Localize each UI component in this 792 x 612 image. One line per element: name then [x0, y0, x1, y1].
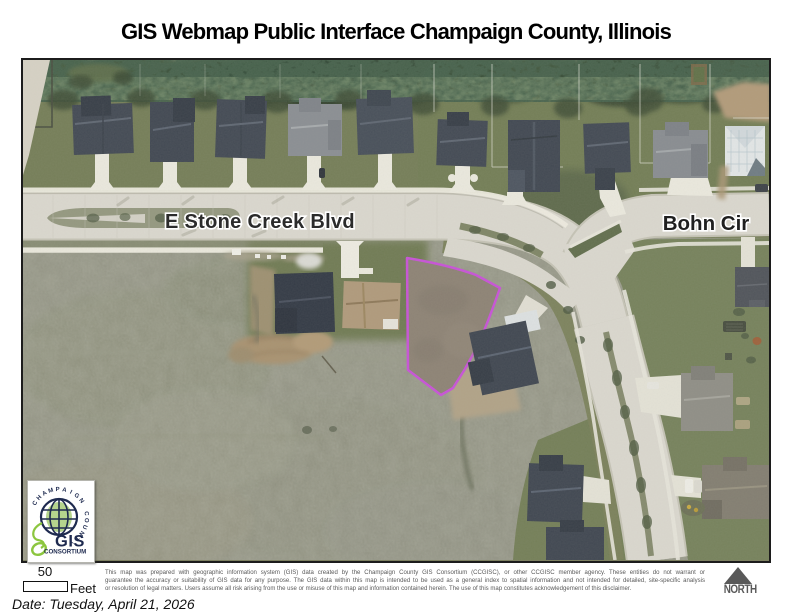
- svg-text:N: N: [77, 498, 84, 505]
- svg-text:P: P: [55, 487, 59, 493]
- svg-text:U: U: [81, 524, 88, 530]
- svg-text:C: C: [83, 511, 90, 517]
- svg-text:O: O: [82, 518, 89, 524]
- svg-text:I: I: [69, 490, 73, 496]
- svg-text:CONSORTIUM: CONSORTIUM: [44, 549, 86, 556]
- svg-text:M: M: [48, 488, 55, 495]
- svg-text:Bohn Cir: Bohn Cir: [663, 212, 750, 235]
- svg-text:A: A: [62, 487, 68, 494]
- svg-text:E Stone Creek Blvd: E Stone Creek Blvd: [165, 211, 355, 233]
